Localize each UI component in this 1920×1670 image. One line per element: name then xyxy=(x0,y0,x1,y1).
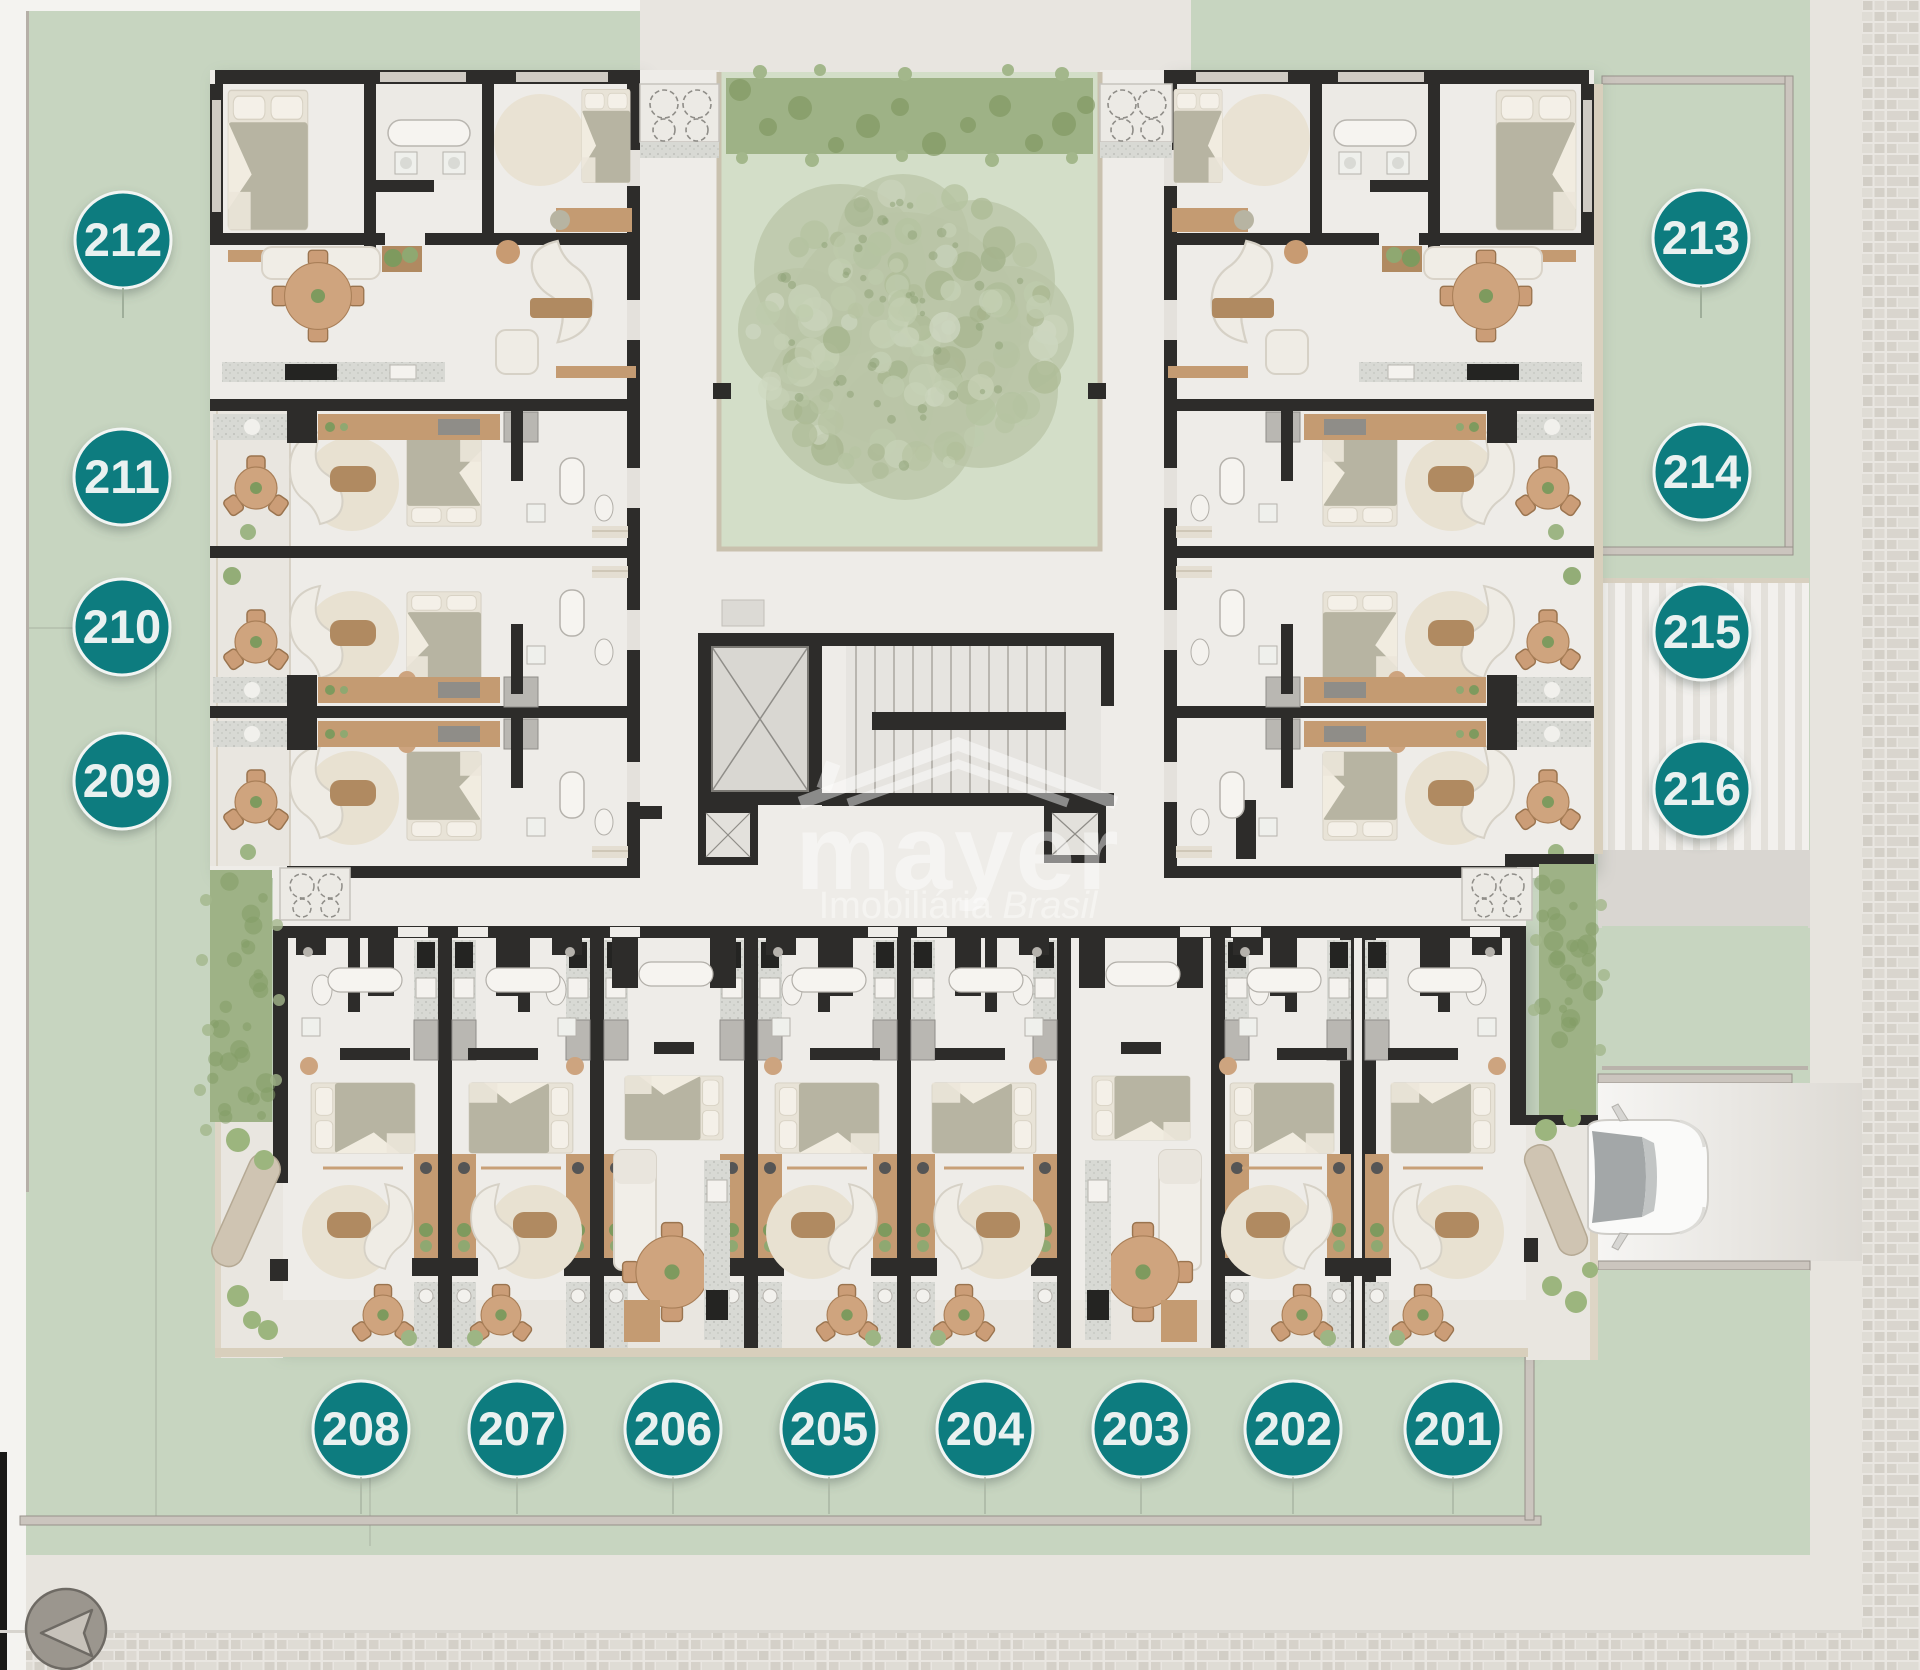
svg-text:204: 204 xyxy=(946,1402,1024,1455)
svg-text:207: 207 xyxy=(478,1402,556,1455)
svg-text:201: 201 xyxy=(1414,1402,1492,1455)
svg-text:203: 203 xyxy=(1102,1402,1180,1455)
svg-text:205: 205 xyxy=(790,1402,868,1455)
svg-text:209: 209 xyxy=(83,754,161,807)
svg-text:208: 208 xyxy=(322,1402,400,1455)
svg-text:Imobiliária Brasil: Imobiliária Brasil xyxy=(819,885,1099,927)
svg-text:206: 206 xyxy=(634,1402,712,1455)
svg-text:211: 211 xyxy=(84,450,160,503)
svg-text:213: 213 xyxy=(1662,211,1740,264)
svg-text:216: 216 xyxy=(1663,762,1741,815)
svg-text:212: 212 xyxy=(84,213,162,266)
svg-text:202: 202 xyxy=(1254,1402,1332,1455)
svg-text:215: 215 xyxy=(1663,605,1741,658)
svg-text:214: 214 xyxy=(1663,445,1741,498)
svg-text:210: 210 xyxy=(83,600,161,653)
